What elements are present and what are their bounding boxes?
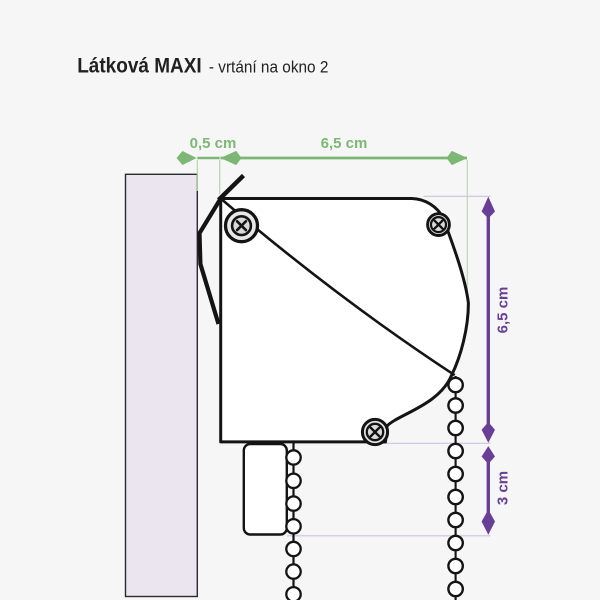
svg-text:- vrtání na okno 2: - vrtání na okno 2 [209,58,329,76]
svg-text:0,5 cm: 0,5 cm [190,135,237,152]
svg-text:Látková MAXI: Látková MAXI [77,54,202,77]
svg-text:6,5 cm: 6,5 cm [495,287,512,334]
svg-text:6,5 cm: 6,5 cm [321,135,368,152]
svg-text:3 cm: 3 cm [495,471,512,505]
